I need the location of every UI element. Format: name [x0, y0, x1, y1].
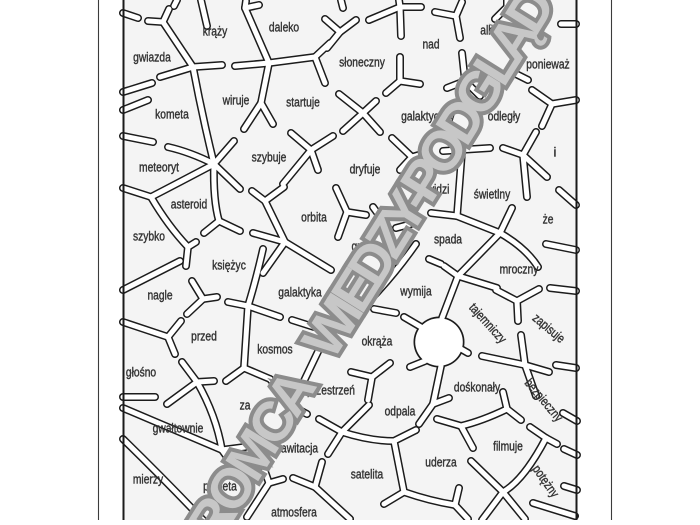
- svg-text:wiruje: wiruje: [222, 93, 250, 108]
- svg-text:słoneczny: słoneczny: [339, 55, 385, 70]
- svg-text:daleko: daleko: [269, 20, 299, 35]
- svg-text:startuje: startuje: [286, 95, 320, 110]
- svg-text:meteoryt: meteoryt: [139, 160, 179, 175]
- svg-text:kometa: kometa: [155, 107, 189, 122]
- svg-text:przed: przed: [191, 329, 217, 344]
- svg-text:szybuje: szybuje: [252, 150, 287, 165]
- svg-text:gwiazda: gwiazda: [133, 50, 171, 65]
- svg-text:księżyc: księżyc: [212, 258, 246, 273]
- svg-text:szybko: szybko: [133, 229, 165, 244]
- svg-text:satelita: satelita: [351, 467, 384, 482]
- svg-text:i: i: [554, 145, 557, 160]
- svg-text:świetlny: świetlny: [474, 187, 511, 202]
- svg-text:głośno: głośno: [126, 365, 156, 380]
- svg-text:że: że: [543, 212, 554, 227]
- svg-text:uderza: uderza: [425, 455, 457, 470]
- svg-text:asteroid: asteroid: [171, 197, 208, 212]
- svg-text:odpala: odpala: [385, 404, 416, 419]
- svg-text:mroczny: mroczny: [500, 262, 539, 277]
- svg-text:gwałtownie: gwałtownie: [153, 421, 204, 436]
- svg-text:dryfuje: dryfuje: [350, 162, 381, 177]
- svg-text:nad: nad: [422, 37, 439, 52]
- svg-text:nagle: nagle: [147, 288, 172, 303]
- svg-text:orbita: orbita: [301, 210, 327, 225]
- svg-text:dośkonały: dośkonały: [454, 380, 501, 395]
- svg-text:wymija: wymija: [400, 284, 433, 299]
- svg-text:atmosfera: atmosfera: [271, 505, 317, 520]
- svg-text:spada: spada: [434, 232, 463, 247]
- svg-text:kosmos: kosmos: [257, 342, 293, 357]
- svg-text:okrąża: okrąża: [362, 334, 393, 349]
- svg-text:krąży: krąży: [203, 24, 228, 39]
- svg-text:mierzy: mierzy: [133, 472, 164, 487]
- svg-text:filmuje: filmuje: [493, 439, 523, 454]
